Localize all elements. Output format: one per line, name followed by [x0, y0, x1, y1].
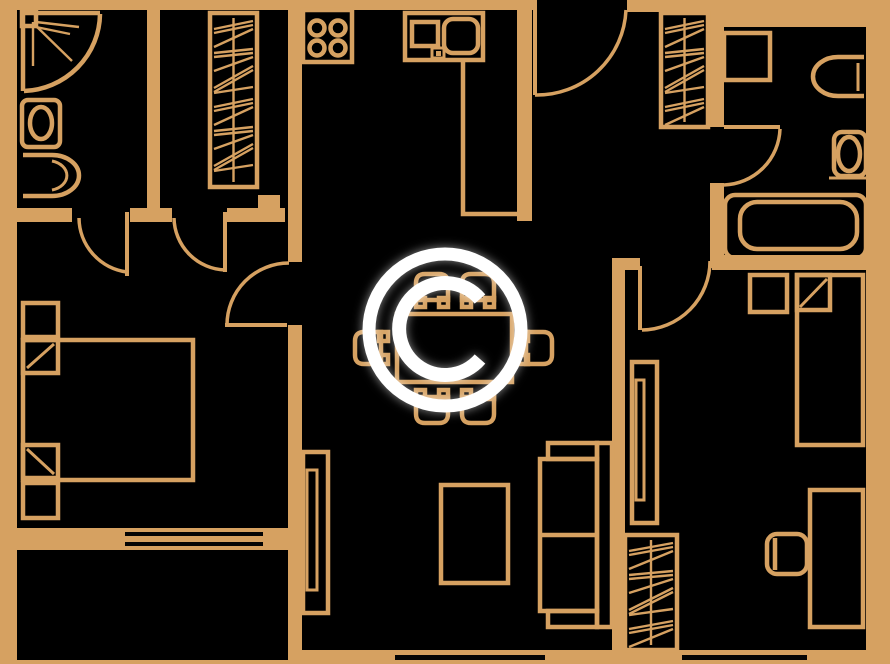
kitchen: [303, 10, 517, 214]
second-bathroom: [724, 33, 866, 258]
balcony-window-line2: [125, 542, 263, 546]
second-bedroom: [632, 275, 863, 627]
bedroom-door: [174, 212, 225, 272]
wall-hall-south-b: [130, 208, 172, 222]
tv-unit-icon: [303, 452, 328, 613]
floor-plan: C: [0, 0, 890, 664]
sofa-icon: [540, 443, 612, 627]
toilet2-icon: [834, 132, 866, 176]
wall-left: [0, 0, 17, 664]
wall-living-west: [288, 325, 302, 664]
bathroom2-door: [724, 127, 780, 185]
tv-unit2-icon: [632, 362, 657, 523]
pillow-icon-2: [23, 445, 58, 478]
floor-plan-page: C: [0, 0, 890, 664]
wall-right: [866, 0, 890, 664]
balcony-window-line1: [125, 532, 263, 536]
entrance-door: [535, 10, 626, 95]
wash-basin2-icon: [813, 57, 864, 96]
nightstand2-icon: [750, 275, 787, 312]
coffee-table: [441, 485, 508, 583]
bathroom-door: [79, 212, 127, 276]
nightstand-icon: [23, 303, 58, 337]
window-bedroom2: [682, 655, 807, 660]
windows: [125, 532, 807, 660]
kitchen-worktop-edge: [463, 60, 517, 214]
wall-hall-south-c: [227, 208, 285, 222]
wall-kitchen-west: [288, 0, 302, 262]
wall-pillar: [258, 195, 280, 209]
bedroom2-wardrobe: [625, 535, 677, 650]
living-room-door: [225, 263, 289, 325]
desk-chair-icon: [767, 534, 807, 574]
walls: [0, 0, 890, 664]
double-bed-icon: [23, 340, 193, 480]
nightstand-icon-2: [23, 483, 58, 518]
wall-hall-south-a: [17, 208, 72, 222]
window-living: [395, 655, 545, 660]
washing-machine-icon: [724, 33, 770, 80]
toilet-icon: [22, 100, 60, 147]
hall-wardrobe: [210, 13, 257, 187]
stove-icon: [303, 10, 352, 62]
desk-icon: [810, 490, 863, 627]
wall-balcony-north: [17, 528, 295, 550]
bedroom2-door: [640, 261, 710, 330]
wall-bathroom-east: [147, 0, 160, 210]
wall-top-right: [717, 0, 866, 27]
bedroom: [23, 303, 193, 518]
hall-wardrobe-2: [661, 13, 708, 127]
living-dining: [303, 274, 612, 627]
wall-top-left: [0, 0, 537, 10]
bathtub-icon: [725, 195, 866, 258]
pillow-icon: [23, 340, 58, 373]
wall-kitchen-east: [517, 0, 532, 221]
single-bed-icon: [797, 275, 863, 445]
wall-top-mid: [627, 0, 717, 12]
wall-balcony-parapet: [17, 660, 295, 664]
wash-basin-icon: [23, 155, 79, 196]
corner-shower-icon: [22, 12, 100, 91]
kitchen-sink-counter-icon: [405, 13, 483, 60]
bathroom: [22, 12, 100, 196]
